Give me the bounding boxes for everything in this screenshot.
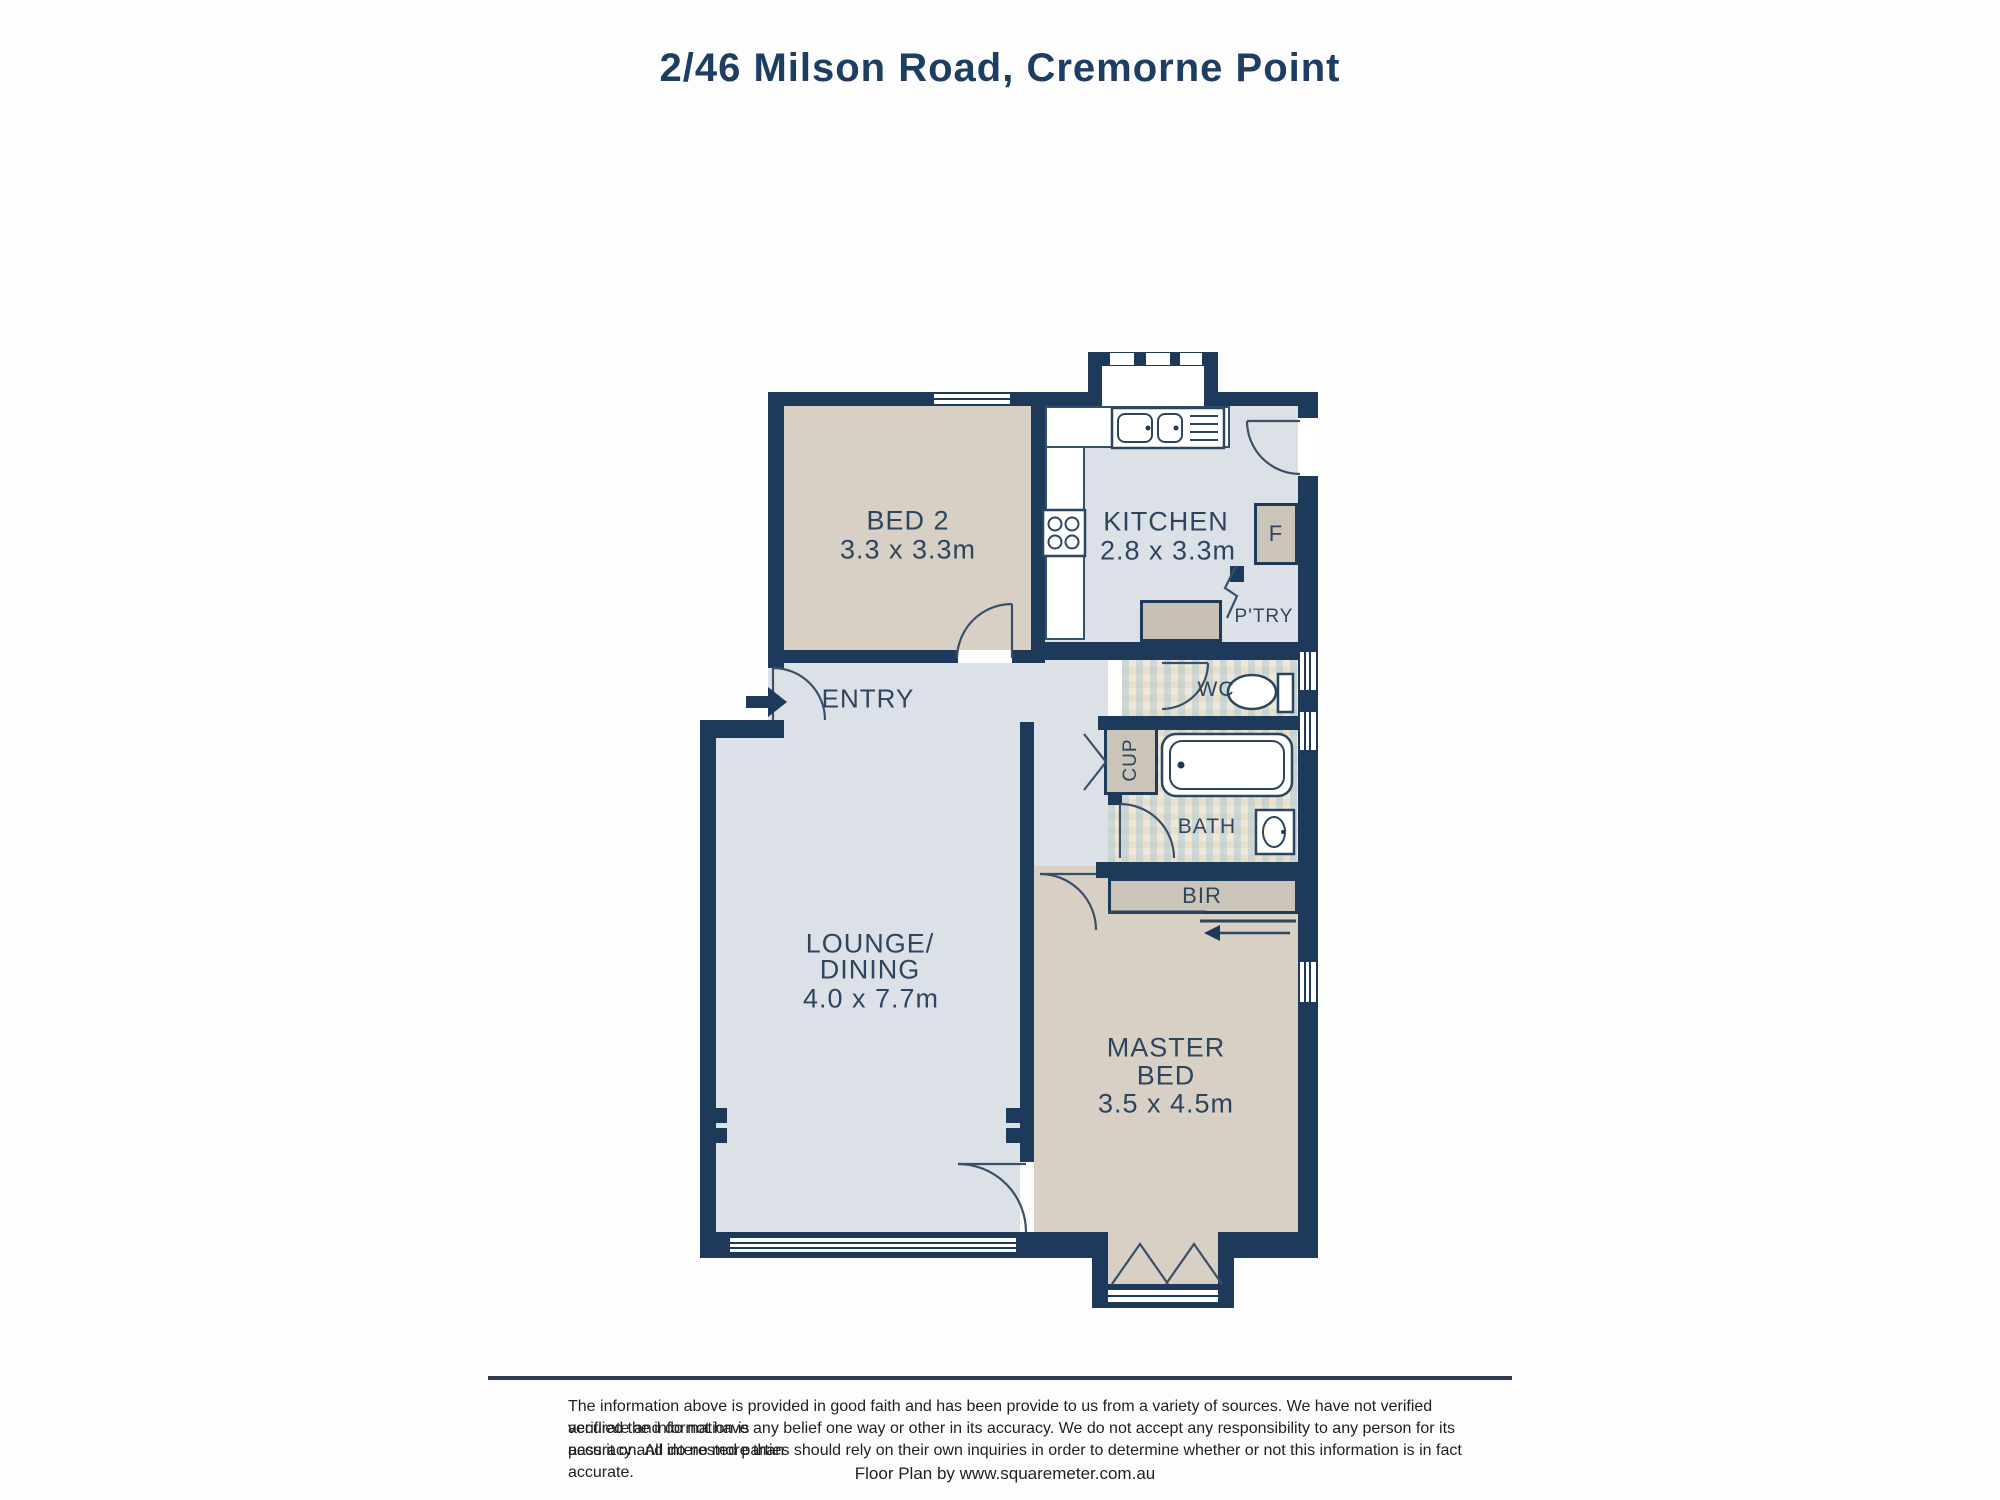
- kitchen-counter-top: [1045, 406, 1230, 448]
- wall-left-outer: [700, 720, 716, 1258]
- entry-label: ENTRY: [822, 684, 915, 715]
- page-title: 2/46 Milson Road, Cremorne Point: [0, 46, 2000, 91]
- bed2-dims: 3.3 x 3.3m: [840, 535, 976, 566]
- kitchen-dims: 2.8 x 3.3m: [1100, 536, 1236, 567]
- master-dims: 3.5 x 4.5m: [1098, 1089, 1234, 1120]
- wall-bed2-left: [768, 392, 784, 668]
- wall-master-bottom-left: [1050, 1232, 1092, 1258]
- hallway-floor: [1034, 660, 1108, 878]
- wall-lounge-master: [1020, 722, 1034, 1162]
- wall-master-stub: [1096, 862, 1110, 878]
- bay-floor: [1108, 1232, 1218, 1284]
- kitchen-bay-window: [1146, 353, 1170, 365]
- kitchen-door-gap: [1298, 418, 1318, 476]
- lounge-pier: [1006, 1128, 1021, 1143]
- lounge-dims: 4.0 x 7.7m: [803, 984, 939, 1015]
- footer-divider: [488, 1376, 1512, 1380]
- wall-bed2-bottom-stub: [1012, 650, 1031, 663]
- wall-bed2-bottom: [768, 650, 958, 663]
- wall-pantry-jog: [1230, 566, 1244, 582]
- wall-right-outer: [1298, 392, 1318, 1258]
- wc-label: WC: [1198, 678, 1235, 702]
- kitchen-bench: [1140, 600, 1222, 642]
- lounge-pier: [712, 1128, 727, 1143]
- kitchen-bay-window: [1180, 353, 1202, 365]
- bay-window: [1108, 1290, 1218, 1302]
- wall-wc-bath-divider: [1098, 716, 1318, 730]
- kitchen-bay-opening: [1102, 366, 1204, 406]
- floor-plan-credit: Floor Plan by www.squaremeter.com.au: [560, 1464, 1450, 1484]
- master-label-line1: MASTER: [1107, 1033, 1226, 1064]
- bath-label: BATH: [1178, 815, 1236, 839]
- wall-bed2-kitchen: [1031, 392, 1045, 663]
- master-label-line2: BED: [1137, 1061, 1196, 1092]
- lounge-window: [730, 1238, 1016, 1252]
- wc-window: [1300, 652, 1316, 690]
- lounge-pier: [712, 1108, 727, 1123]
- lounge-label-line2: DINING: [820, 955, 921, 986]
- bir-label: BIR: [1182, 883, 1222, 909]
- pantry-label: P'TRY: [1235, 606, 1294, 628]
- cupboard-label: CUP: [1120, 738, 1142, 781]
- floor-plan-page: 2/46 Milson Road, Cremorne Point: [0, 0, 2000, 1500]
- bed2-window: [934, 394, 1010, 404]
- kitchen-counter-left: [1045, 446, 1085, 640]
- wall-kitchen-bottom: [1031, 642, 1318, 660]
- bed2-label: BED 2: [866, 506, 949, 537]
- master-window: [1300, 962, 1316, 1002]
- fridge-label: F: [1269, 521, 1283, 547]
- wall-bath-left-stub: [1108, 795, 1122, 805]
- bath-window: [1300, 712, 1316, 750]
- kitchen-bay-window: [1110, 353, 1134, 365]
- lounge-pier: [1006, 1108, 1021, 1123]
- kitchen-label: KITCHEN: [1103, 507, 1229, 538]
- wall-bath-bottom: [1098, 862, 1318, 878]
